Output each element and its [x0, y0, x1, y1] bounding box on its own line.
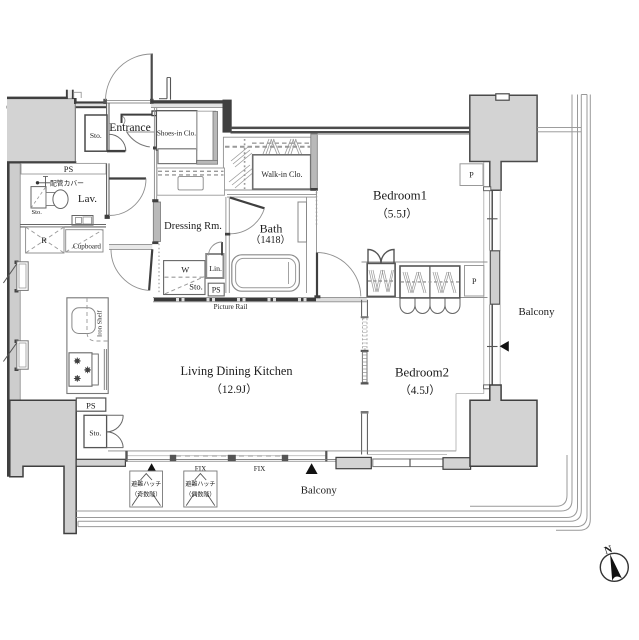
svg-text:Iron Shelf: Iron Shelf — [97, 310, 104, 337]
svg-text:Dressing Rm.: Dressing Rm. — [164, 221, 222, 232]
svg-text:Balcony: Balcony — [301, 485, 338, 497]
svg-text:PS: PS — [86, 401, 96, 411]
svg-text:（5.5J）: （5.5J） — [376, 208, 417, 221]
svg-text:FIX: FIX — [254, 465, 266, 473]
svg-text:Bedroom2: Bedroom2 — [395, 365, 449, 379]
svg-text:P: P — [469, 170, 474, 179]
svg-text:Balcony: Balcony — [519, 306, 556, 318]
svg-text:W: W — [181, 264, 189, 274]
svg-text:（奇数階）: （奇数階） — [131, 491, 161, 499]
svg-text:P: P — [472, 277, 477, 286]
svg-text:Cupboard: Cupboard — [73, 243, 101, 251]
svg-text:Walk-in Clo.: Walk-in Clo. — [261, 170, 302, 179]
svg-text:（4.5J）: （4.5J） — [399, 384, 440, 397]
svg-text:Sto.: Sto. — [90, 131, 102, 140]
svg-text:（12.9J）: （12.9J） — [211, 383, 258, 396]
svg-text:Living Dining Kitchen: Living Dining Kitchen — [180, 364, 292, 378]
svg-text:Shoes-in Clo.: Shoes-in Clo. — [157, 130, 196, 138]
svg-text:Sto.: Sto. — [189, 282, 202, 292]
svg-text:Entrance: Entrance — [109, 121, 151, 134]
svg-text:避難ハッチ: 避難ハッチ — [185, 480, 215, 488]
svg-text:PS: PS — [64, 164, 74, 174]
svg-text:Bedroom1: Bedroom1 — [373, 189, 427, 203]
svg-text:Bath: Bath — [260, 221, 283, 235]
svg-text:Sto.: Sto. — [32, 209, 43, 216]
svg-text:（1418）: （1418） — [251, 234, 291, 246]
svg-text:R: R — [41, 235, 47, 245]
svg-text:（偶数階）: （偶数階） — [185, 491, 215, 499]
svg-text:Sto.: Sto. — [89, 429, 101, 438]
svg-text:避難ハッチ: 避難ハッチ — [131, 480, 161, 488]
svg-text:Lin.: Lin. — [209, 264, 222, 273]
svg-text:配管カバー: 配管カバー — [50, 179, 84, 188]
svg-text:Picture Rail: Picture Rail — [214, 303, 248, 311]
svg-text:PS: PS — [212, 286, 221, 295]
svg-text:Lav.: Lav. — [78, 193, 97, 205]
